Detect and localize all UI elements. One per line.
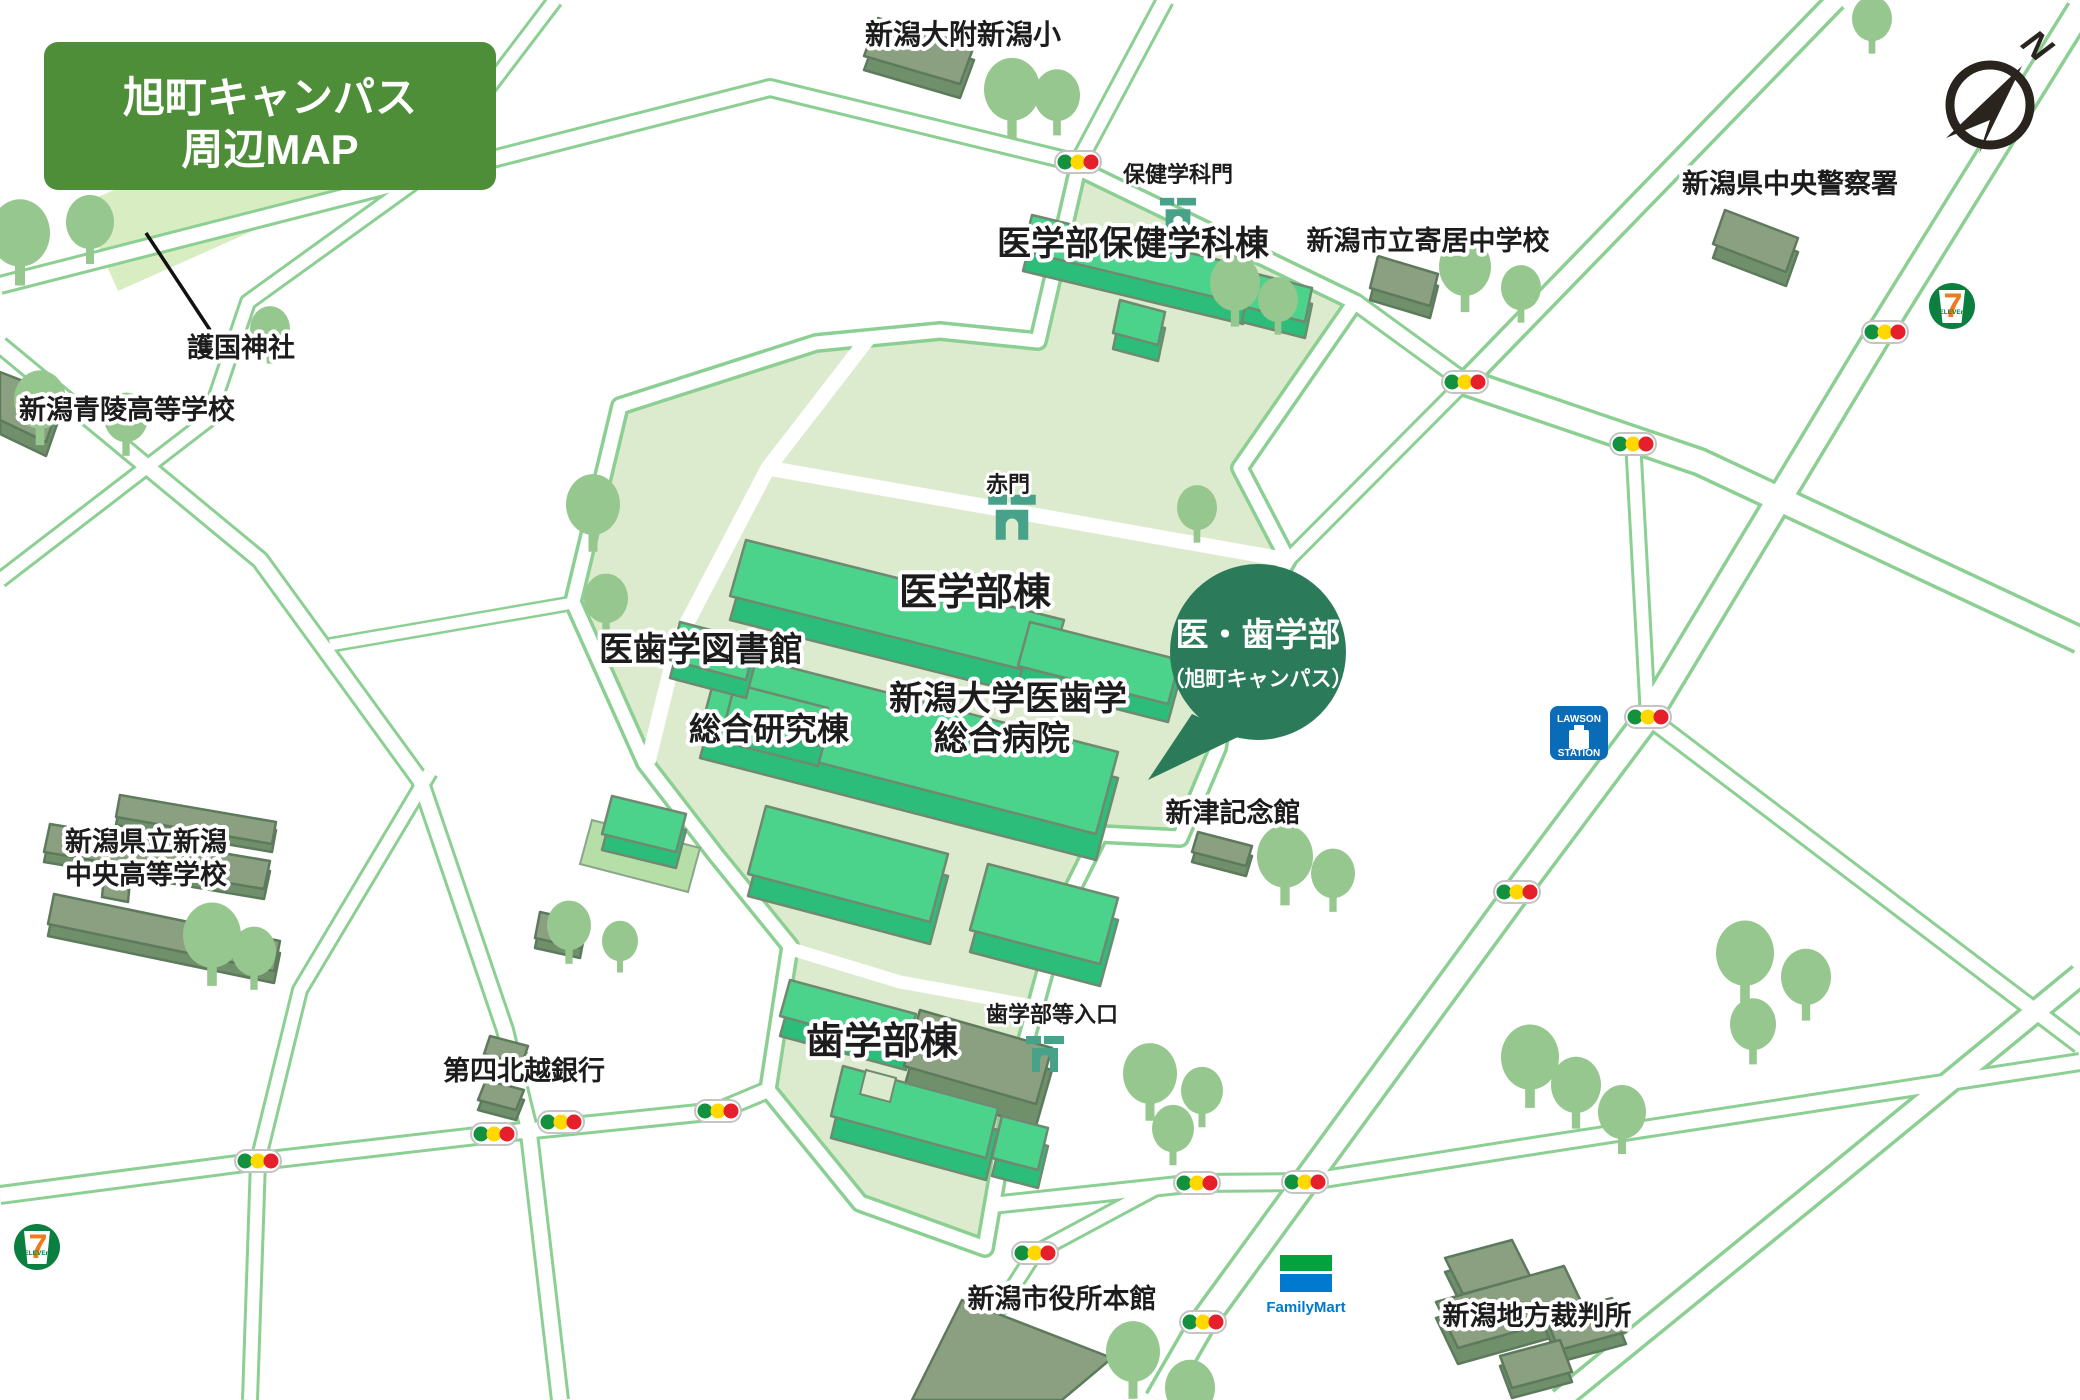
map-title-box: 旭町キャンパス 周辺MAP [44, 42, 496, 190]
callout-line1: 医・歯学部 [1176, 616, 1341, 653]
tree-icon [1781, 949, 1831, 1021]
building [1192, 832, 1252, 876]
building [912, 1300, 1112, 1400]
label-city-hall: 新潟市役所本館 [968, 1283, 1157, 1314]
label-dental-entrance: 歯学部等入口 [986, 1002, 1118, 1027]
campus-area-map: 7 ELEVEn [0, 0, 2080, 1400]
map-title-line1: 旭町キャンパス [123, 74, 417, 121]
traffic-signal-icon [471, 1123, 517, 1145]
seven-eleven-icon-top-right [1929, 283, 1975, 329]
tree-icon [1257, 825, 1313, 906]
label-gokoku-shrine: 護国神社 [187, 332, 295, 363]
seven-eleven-icon-bottom-left [14, 1224, 60, 1270]
label-hospital-line2: 総合病院 [934, 719, 1070, 758]
lawson-icon: LAWSON STATION [1550, 706, 1608, 760]
callout-line2: （旭町キャンパス） [1164, 667, 1353, 691]
traffic-signal-icon [1442, 371, 1488, 393]
lawson-text-top: LAWSON [1557, 714, 1601, 725]
label-central-police: 新潟県中央警察署 [1682, 168, 1898, 199]
label-bank: 第四北越銀行 [443, 1055, 605, 1086]
label-district-court: 新潟地方裁判所 [1443, 1300, 1632, 1331]
traffic-signal-icon [1174, 1172, 1220, 1194]
tree-icon [1034, 69, 1080, 135]
tree-icon [602, 921, 638, 973]
label-chuo-high-line2: 中央高等学校 [65, 859, 227, 890]
tree-icon [1501, 1025, 1559, 1108]
traffic-signal-icon [1055, 151, 1101, 173]
traffic-signal-icon [1180, 1311, 1226, 1333]
tree-icon [984, 58, 1040, 138]
tree-icon [1551, 1057, 1601, 1129]
label-niitsu-memorial: 新津記念館 [1166, 797, 1301, 828]
label-dental-building: 歯学部棟 [806, 1020, 959, 1063]
tree-icon [547, 901, 591, 964]
traffic-signal-icon [1625, 706, 1671, 728]
label-yorii-junior-high: 新潟市立寄居中学校 [1307, 225, 1550, 256]
tree-icon [1152, 1105, 1194, 1165]
label-hospital-line1: 新潟大学医歯学 [889, 679, 1127, 718]
traffic-signal-icon [695, 1100, 741, 1122]
label-chuo-high-line1: 新潟県立新潟 [65, 826, 227, 857]
traffic-signal-icon [1012, 1242, 1058, 1264]
label-medical-building: 医学部棟 [899, 571, 1052, 614]
traffic-signal-icon [235, 1150, 281, 1172]
tree-icon [1716, 921, 1774, 1004]
familymart-icon: FamilyMart [1266, 1255, 1345, 1316]
label-health-gate: 保健学科門 [1122, 162, 1233, 187]
label-elementary-school: 新潟大附新潟小 [865, 19, 1061, 50]
label-library: 医歯学図書館 [599, 630, 803, 669]
campus-building [992, 1116, 1048, 1188]
tree-icon [1311, 849, 1355, 912]
label-research-building: 総合研究棟 [689, 711, 850, 747]
traffic-signal-icon [1862, 321, 1908, 343]
traffic-signal-icon [538, 1111, 584, 1133]
traffic-signal-icon [1494, 881, 1540, 903]
label-akamon-gate: 赤門 [986, 472, 1030, 497]
label-seiryo-high-school: 新潟青陵高等学校 [19, 394, 235, 425]
traffic-signal-icon [1282, 1171, 1328, 1193]
tree-icon [1730, 998, 1776, 1064]
campus-building [1113, 300, 1165, 361]
map-canvas: 7 ELEVEn [0, 0, 2080, 1400]
tree-icon [1852, 0, 1892, 54]
traffic-signal-icon [1610, 433, 1656, 455]
map-title-line2: 周辺MAP [181, 126, 358, 173]
lawson-text-bottom: STATION [1558, 748, 1600, 759]
building [1713, 210, 1798, 286]
familymart-text: FamilyMart [1266, 1299, 1345, 1316]
label-health-dept-building: 医学部保健学科棟 [997, 224, 1270, 263]
